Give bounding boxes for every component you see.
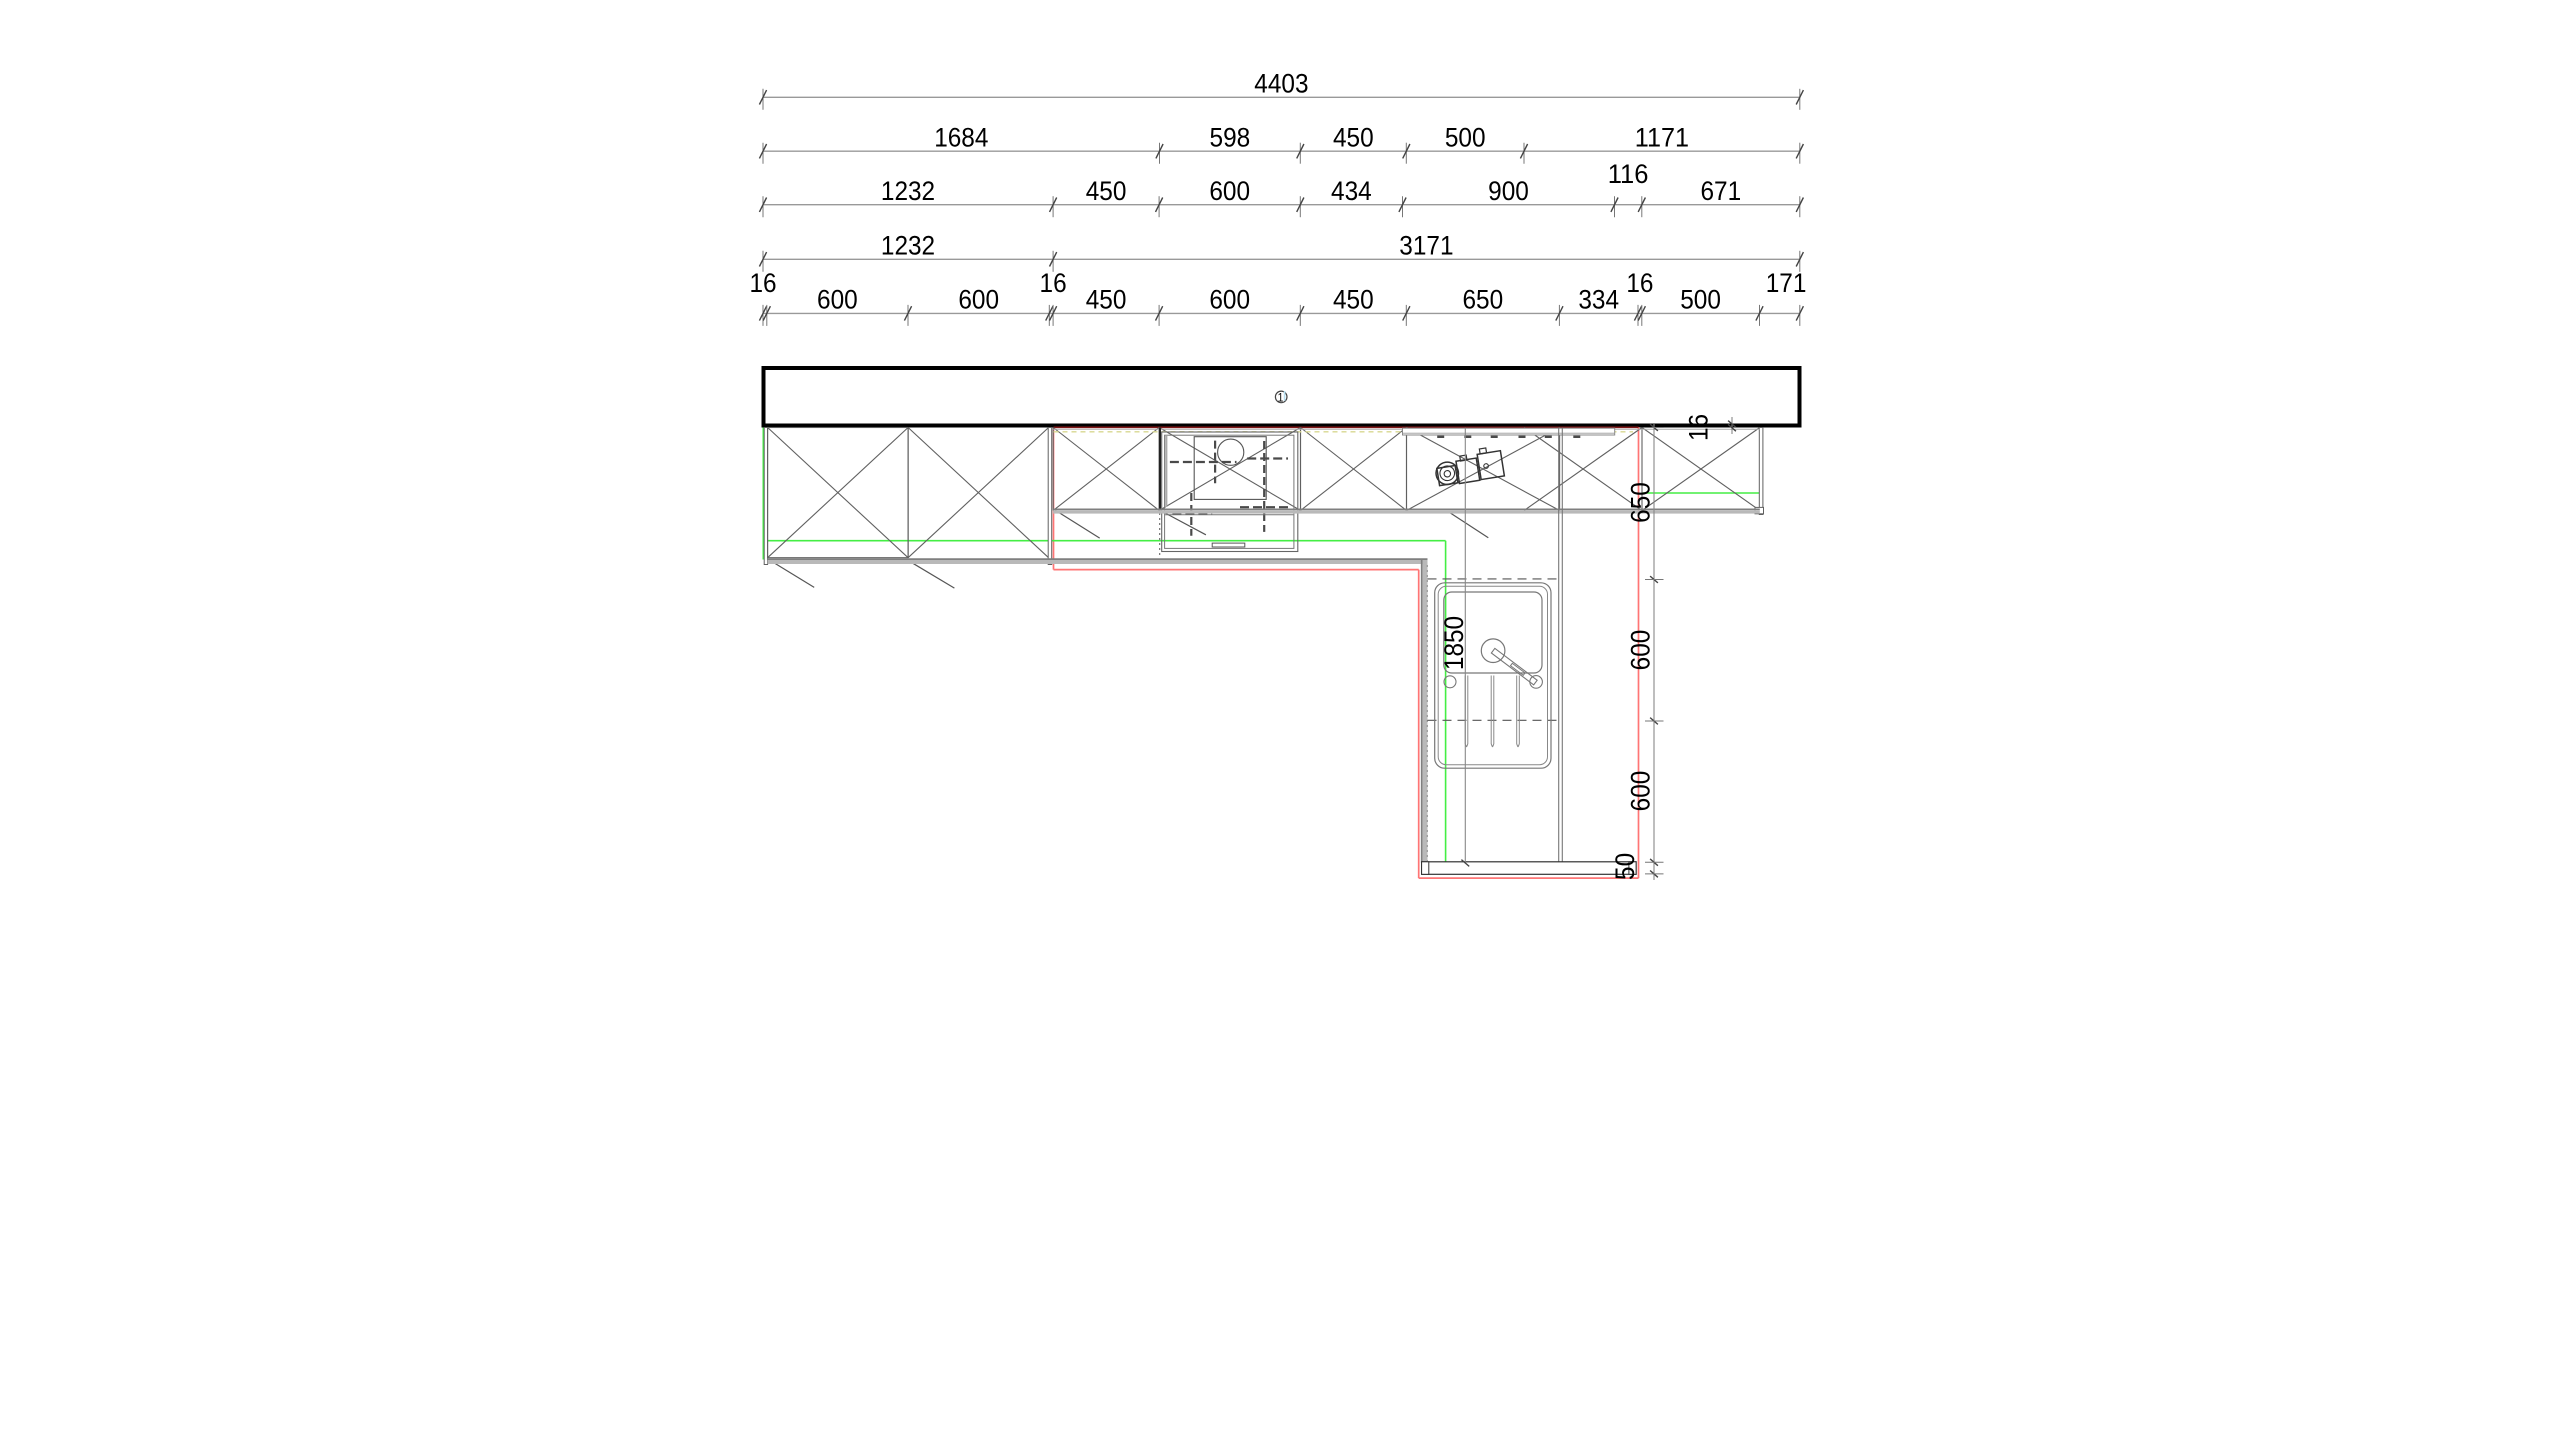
- svg-text:600: 600: [958, 285, 999, 315]
- svg-text:16: 16: [1684, 414, 1714, 441]
- svg-text:598: 598: [1210, 122, 1251, 152]
- svg-text:600: 600: [1626, 771, 1656, 812]
- svg-text:1684: 1684: [934, 122, 988, 152]
- svg-text:1232: 1232: [881, 230, 935, 260]
- svg-text:1: 1: [1278, 393, 1284, 405]
- svg-text:650: 650: [1462, 285, 1503, 315]
- svg-text:434: 434: [1331, 176, 1372, 206]
- svg-text:600: 600: [1626, 630, 1656, 671]
- svg-text:500: 500: [1445, 122, 1486, 152]
- svg-text:600: 600: [1209, 176, 1250, 206]
- svg-text:450: 450: [1333, 122, 1374, 152]
- svg-text:1850: 1850: [1439, 616, 1469, 670]
- svg-text:4403: 4403: [1254, 68, 1308, 98]
- svg-text:16: 16: [749, 268, 776, 298]
- svg-text:116: 116: [1608, 159, 1649, 189]
- svg-text:171: 171: [1766, 268, 1807, 298]
- svg-text:50: 50: [1610, 853, 1640, 880]
- svg-text:16: 16: [1626, 268, 1653, 298]
- svg-text:500: 500: [1680, 285, 1721, 315]
- svg-text:450: 450: [1086, 176, 1127, 206]
- svg-text:334: 334: [1578, 285, 1619, 315]
- svg-text:3171: 3171: [1399, 230, 1453, 260]
- svg-text:671: 671: [1700, 176, 1741, 206]
- svg-text:600: 600: [1209, 285, 1250, 315]
- svg-text:450: 450: [1333, 285, 1374, 315]
- svg-text:16: 16: [1040, 268, 1067, 298]
- svg-text:1171: 1171: [1635, 122, 1689, 152]
- svg-text:600: 600: [817, 285, 858, 315]
- svg-text:1232: 1232: [881, 176, 935, 206]
- svg-text:450: 450: [1086, 285, 1127, 315]
- svg-text:900: 900: [1488, 176, 1529, 206]
- svg-text:650: 650: [1626, 482, 1656, 523]
